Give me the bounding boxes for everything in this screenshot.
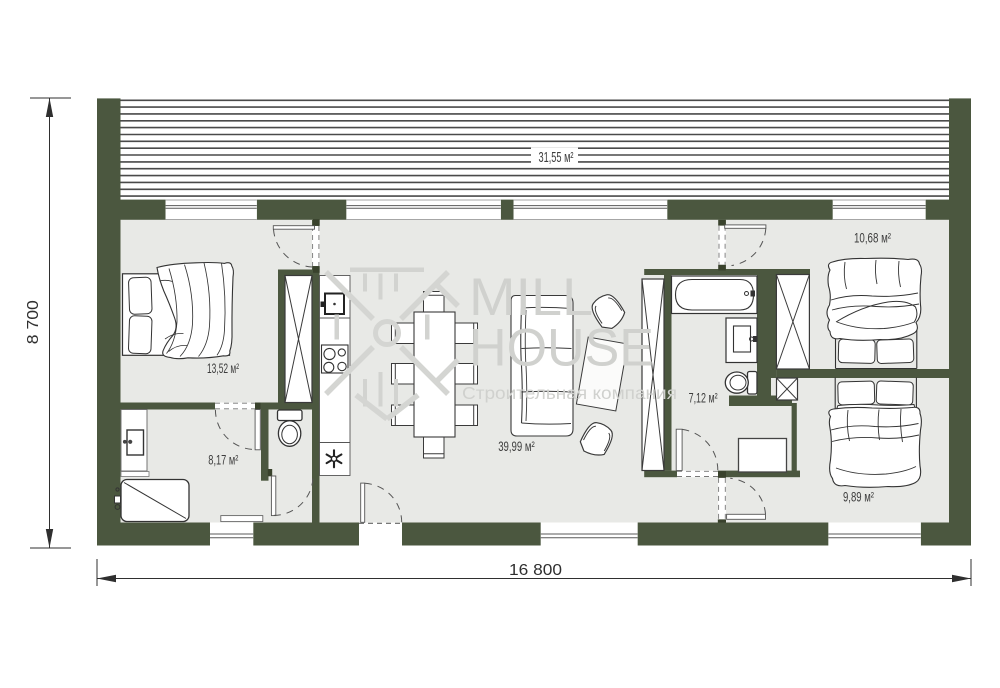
svg-text:13,52 м²: 13,52 м² [207,361,239,376]
svg-text:7,12 м²: 7,12 м² [689,390,718,405]
svg-text:16 800: 16 800 [509,562,562,579]
svg-text:8,17 м²: 8,17 м² [208,452,238,467]
svg-text:39,99 м²: 39,99 м² [498,439,535,454]
svg-text:Строительная компания: Строительная компания [462,383,677,403]
svg-text:10,68 м²: 10,68 м² [854,230,891,245]
svg-text:HOUSE: HOUSE [469,319,654,378]
svg-text:8 700: 8 700 [25,300,42,344]
svg-text:31,55 м²: 31,55 м² [539,150,574,166]
svg-text:9,89 м²: 9,89 м² [843,490,874,505]
